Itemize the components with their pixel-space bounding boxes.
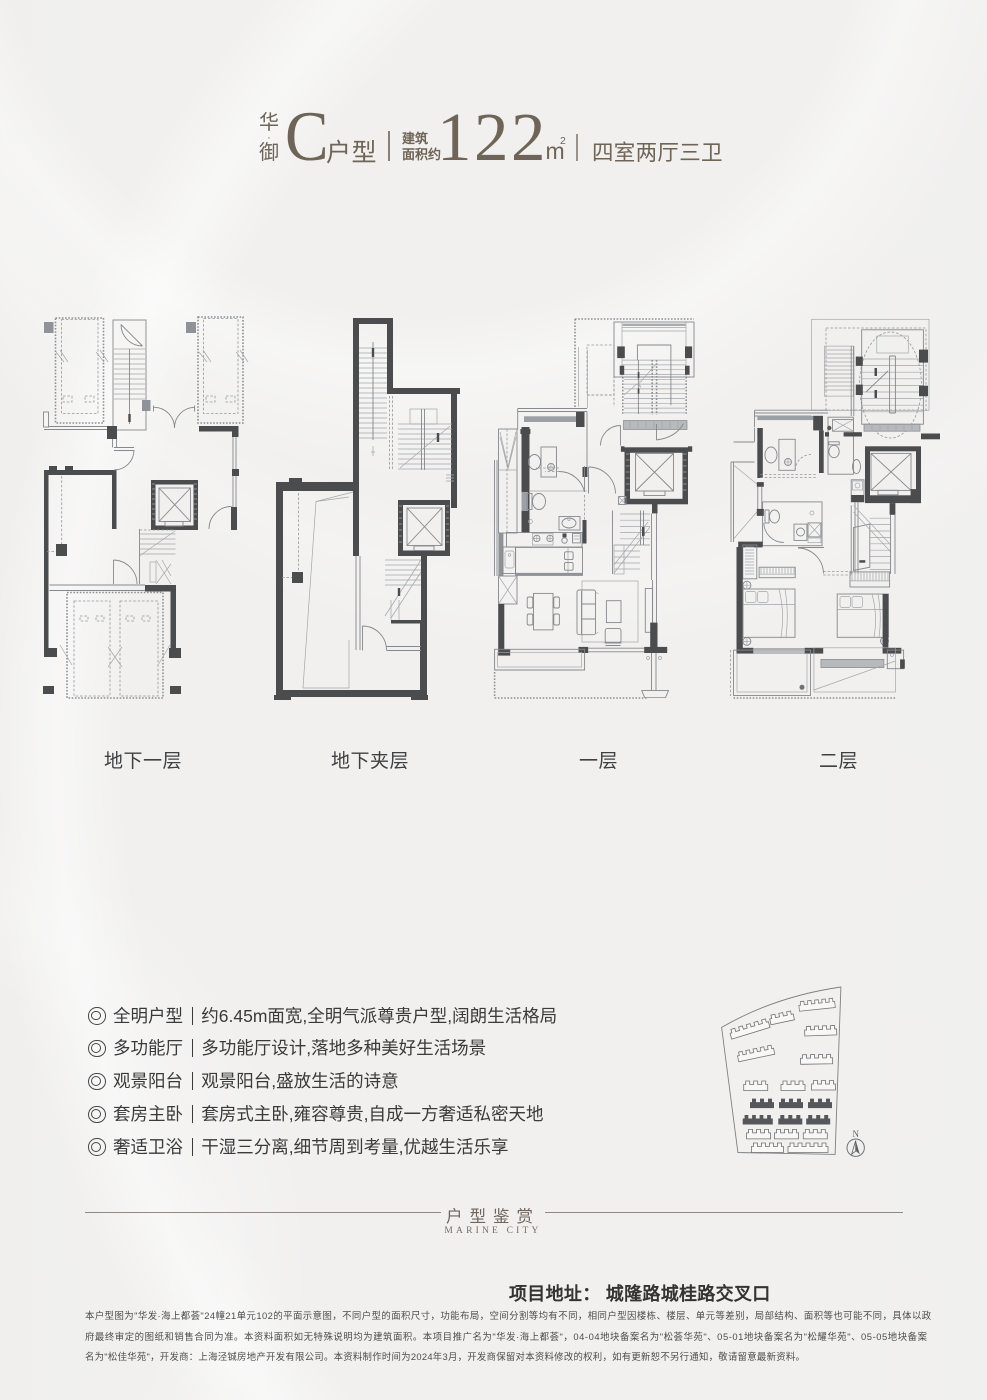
svg-text:N: N <box>852 1129 859 1139</box>
